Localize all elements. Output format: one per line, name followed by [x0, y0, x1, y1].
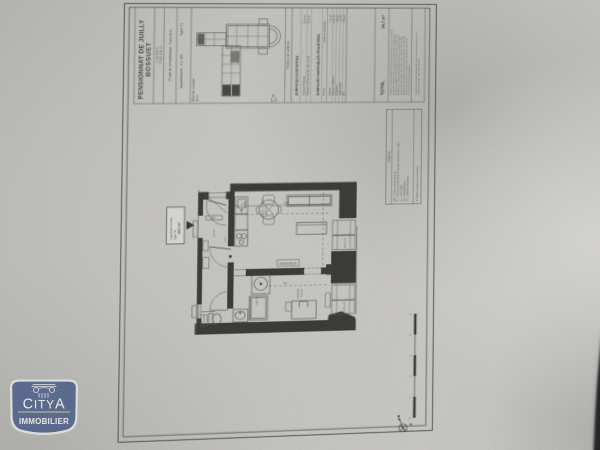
svg-text:BEC: BEC — [210, 217, 215, 220]
svg-text:Surfaces habitables: Surfaces habitables — [322, 20, 326, 43]
svg-text:17,6 m²: 17,6 m² — [264, 206, 268, 215]
svg-text:SURFACES HABITABLES PROJETEES: SURFACES HABITABLES PROJETEES — [316, 33, 321, 95]
svg-text:MEN 0,95: MEN 0,95 — [345, 237, 347, 248]
svg-text:commercialisation du programme: commercialisation du programme. — [408, 64, 411, 95]
svg-text:Séjour / Cuisine: Séjour / Cuisine — [331, 76, 335, 95]
svg-text:3,01: 3,01 — [284, 203, 289, 205]
svg-text:● Portes existantes conservées: ● Portes existantes conservées — [415, 165, 419, 201]
svg-text:2,52: 2,52 — [225, 236, 227, 241]
svg-text:Projet de réhabilitation - tra: Projet de réhabilitation - tranche A — [168, 29, 173, 81]
svg-text:SdE 4,1: SdE 4,1 — [256, 296, 259, 305]
svg-text:5: 5 — [410, 313, 412, 316]
svg-text:IMMOBILIER: IMMOBILIER — [19, 417, 69, 426]
svg-text:Tableau de surfaces: Tableau de surfaces — [286, 41, 290, 70]
svg-text:Séjour / Cuisine: Séjour / Cuisine — [260, 199, 264, 218]
svg-text:Type T1: Type T1 — [179, 23, 183, 36]
svg-text:Appartement - C1 102: Appartement - C1 102 — [179, 54, 183, 88]
svg-text:MEN 0,95: MEN 0,95 — [344, 301, 346, 312]
svg-text:R+1: R+1 — [195, 95, 199, 101]
svg-text:TOTAL: TOTAL — [380, 80, 385, 95]
svg-text:SURFACES EXISTANTES: SURFACES EXISTANTES — [295, 55, 299, 96]
svg-text:2: 2 — [409, 376, 411, 379]
svg-text:3: 3 — [410, 355, 412, 358]
svg-text:RADIATEUR: RADIATEUR — [280, 261, 298, 265]
svg-text:4: 4 — [410, 334, 412, 337]
svg-text:34,7 m²: 34,7 m² — [381, 14, 386, 29]
svg-text:6,9 m²: 6,9 m² — [299, 289, 303, 297]
svg-text:17,6 m²: 17,6 m² — [332, 14, 336, 23]
svg-text:WC: WC — [341, 91, 345, 95]
svg-text:Chambre: Chambre — [296, 288, 300, 299]
svg-text:0: 0 — [409, 417, 411, 420]
svg-text:6,9 m²: 6,9 m² — [335, 14, 339, 22]
svg-text:2,87: 2,87 — [242, 203, 247, 205]
svg-text:TE : Tableau électrique: TE : Tableau électrique — [405, 175, 409, 202]
svg-text:Chambre: Chambre — [335, 84, 339, 95]
svg-text:1: 1 — [409, 397, 411, 400]
svg-text:CITYA: CITYA — [23, 397, 66, 413]
svg-text:3,01: 3,01 — [283, 283, 288, 285]
svg-text:Pièces: Pièces — [322, 87, 326, 95]
svg-text:Légende: Légende — [387, 151, 391, 163]
svg-text:BOSSUET: BOSSUET — [145, 42, 153, 77]
svg-text:77230 JUILLY: 77230 JUILLY — [159, 45, 163, 65]
svg-text:Entrée: Entrée — [213, 229, 216, 237]
svg-text:2,9 m²: 2,9 m² — [342, 14, 346, 22]
svg-text:34,7 m²: 34,7 m² — [177, 222, 181, 235]
svg-text:4,1 m²: 4,1 m² — [339, 14, 343, 22]
svg-text:4,2 m²: 4,2 m² — [328, 14, 332, 22]
svg-text:Salle d'eau: Salle d'eau — [338, 82, 342, 96]
svg-text:maîtrise d'ouvrage - tous droi: maîtrise d'ouvrage - tous droits réservé… — [417, 58, 420, 95]
svg-text:Entrée: Entrée — [328, 87, 332, 95]
